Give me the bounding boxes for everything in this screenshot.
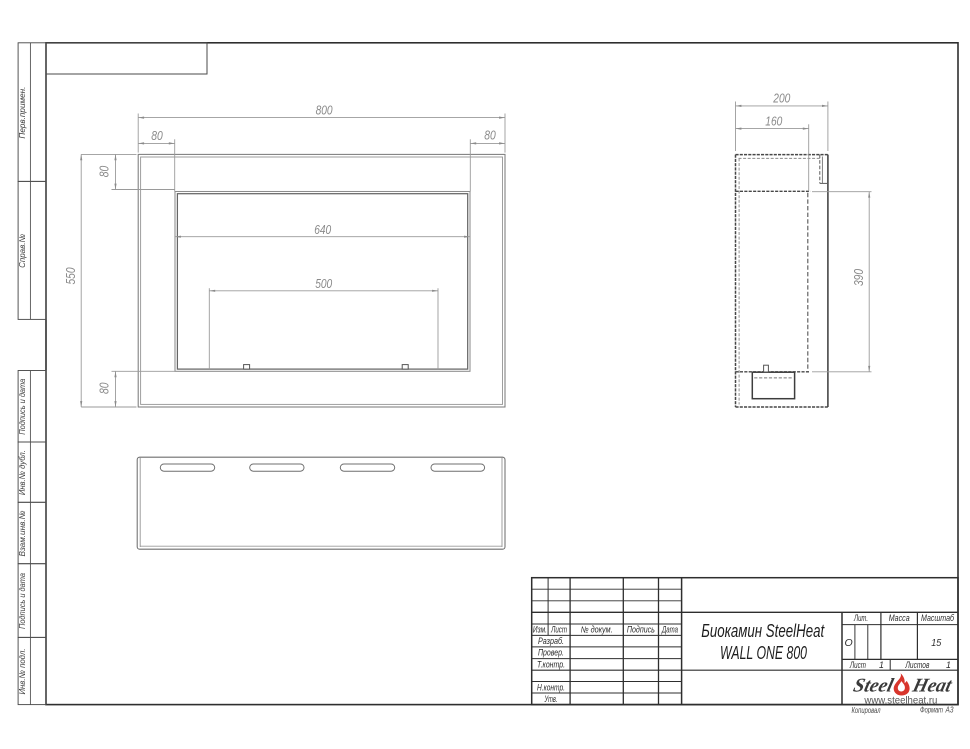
svg-text:80: 80 [97, 382, 111, 394]
svg-text:Т.контр.: Т.контр. [537, 659, 565, 669]
svg-text:Инв.№ дубл.: Инв.№ дубл. [17, 450, 27, 495]
svg-text:WALL ONE 800: WALL ONE 800 [720, 643, 807, 663]
svg-text:О: О [845, 637, 853, 649]
svg-text:160: 160 [765, 114, 782, 128]
svg-text:Лист: Лист [849, 660, 866, 670]
svg-text:Листов: Листов [905, 660, 930, 670]
svg-text:Н.контр.: Н.контр. [537, 682, 565, 692]
svg-text:Инв.№ подл.: Инв.№ подл. [17, 649, 27, 695]
svg-text:200: 200 [772, 92, 790, 106]
svg-text:Heat: Heat [910, 675, 955, 697]
svg-text:80: 80 [484, 129, 496, 143]
svg-text:Масштаб: Масштаб [921, 613, 955, 623]
svg-text:Подпись и дата: Подпись и дата [17, 378, 27, 434]
svg-text:390: 390 [852, 269, 866, 286]
svg-text:640: 640 [314, 223, 331, 237]
svg-text:Утв.: Утв. [544, 694, 558, 704]
svg-text:Подпись и дата: Подпись и дата [17, 573, 27, 629]
svg-text:Подпись: Подпись [627, 625, 655, 635]
svg-text:Изм.: Изм. [533, 625, 547, 635]
svg-text:Steel: Steel [851, 675, 896, 697]
svg-text:15: 15 [931, 637, 941, 649]
svg-text:Масса: Масса [889, 613, 910, 623]
svg-text:Справ.№: Справ.№ [17, 234, 27, 268]
svg-text:№ докум.: № докум. [581, 625, 613, 635]
svg-text:Лист: Лист [550, 625, 567, 635]
svg-text:Перв.примен.: Перв.примен. [17, 87, 27, 139]
svg-text:Разраб.: Разраб. [538, 636, 564, 646]
svg-text:Провер.: Провер. [538, 648, 564, 658]
svg-text:А3: А3 [945, 705, 954, 714]
svg-text:1: 1 [946, 660, 951, 670]
svg-text:80: 80 [97, 166, 111, 178]
svg-text:80: 80 [151, 129, 163, 143]
svg-text:Копировал: Копировал [852, 706, 881, 715]
svg-text:800: 800 [316, 103, 333, 117]
svg-text:Взам.инв.№: Взам.инв.№ [17, 511, 27, 557]
svg-text:Дата: Дата [661, 625, 678, 635]
svg-text:Лит.: Лит. [853, 613, 868, 623]
svg-text:Формат: Формат [920, 705, 943, 714]
svg-text:Биокамин SteelHeat: Биокамин SteelHeat [701, 621, 825, 641]
svg-text:550: 550 [64, 267, 78, 284]
svg-text:500: 500 [315, 277, 332, 291]
svg-text:1: 1 [879, 660, 884, 670]
